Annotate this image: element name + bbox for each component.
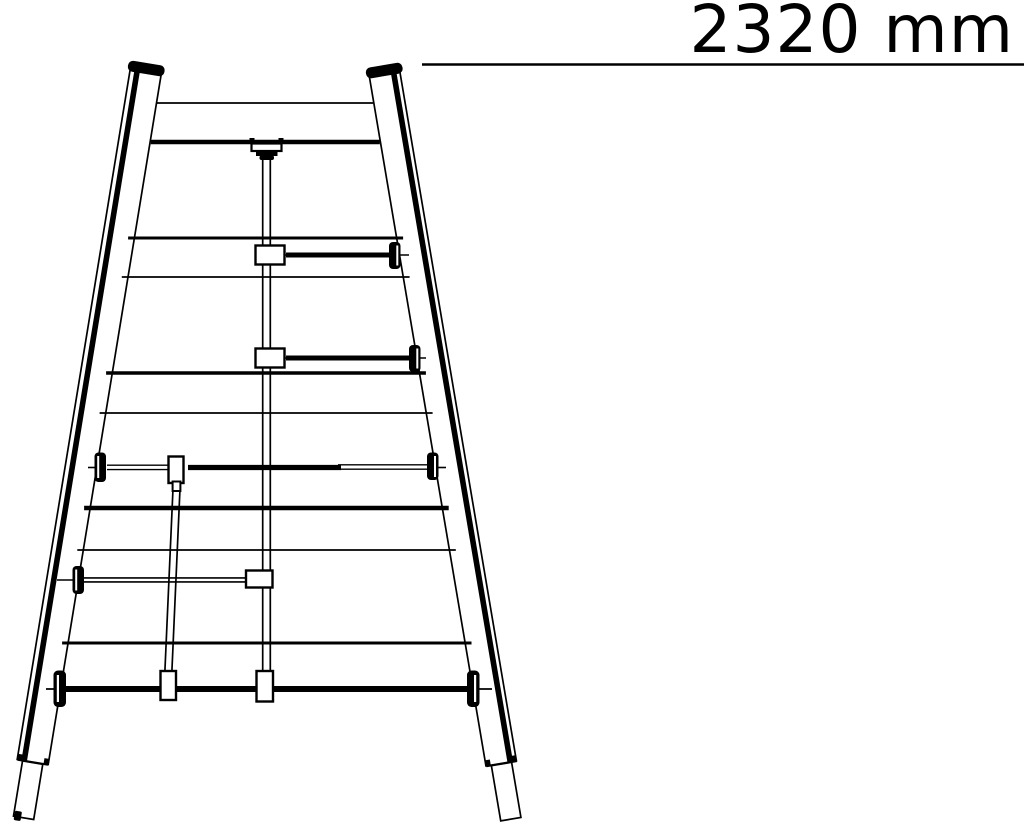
right-rail: [365, 62, 529, 822]
tie-rod-a: [256, 242, 410, 269]
right-rail-outer-edge: [399, 69, 516, 761]
right-foot: [491, 762, 521, 821]
left-rail-inner-edge: [48, 74, 161, 766]
tie-rod-d-flange: [73, 566, 85, 594]
tie-rod-e: [46, 671, 492, 708]
drawing-canvas: 2320 mm: [0, 0, 1024, 836]
center-rod: [263, 153, 271, 689]
right-rail-inner-edge: [369, 76, 486, 767]
tie-rod-e-flange-left: [54, 671, 67, 708]
left-rail-top-cap: [127, 60, 165, 77]
turnbuckle-body: [169, 457, 184, 484]
tie-rod-a-flange: [389, 242, 401, 269]
tie-rod-c-flange-right-highlight: [434, 456, 436, 477]
tie-rod-c-flange-left-highlight: [97, 456, 99, 478]
tie-rod-d-block: [246, 571, 273, 588]
tie-rod-e-flange-right: [467, 671, 480, 708]
tie-rod-c-flange-right: [427, 453, 439, 481]
t-bracket-plate: [252, 144, 282, 152]
dimension-label: 2320 mm: [689, 0, 1014, 68]
tie-rod-c: [88, 453, 446, 492]
tie-rod-b-flange-highlight: [416, 349, 418, 369]
tie-rod-a-block: [256, 246, 285, 265]
t-bracket-body: [256, 151, 278, 157]
left-rail-band: [21, 68, 140, 762]
tie-rod-c-flange-left: [95, 453, 107, 483]
left-rail: [5, 60, 166, 824]
tie-rod-e-flange-left-highlight: [57, 675, 59, 702]
t-bracket-collar: [260, 156, 275, 161]
tie-rod-b: [256, 345, 427, 372]
right-rail-top-cap: [365, 62, 403, 79]
left-foot: [13, 761, 42, 820]
tie-rod-d: [57, 566, 273, 594]
tie-rod-e-center-block: [257, 671, 274, 702]
tie-rod-b-flange: [409, 345, 421, 372]
tie-rod-a-flange-highlight: [396, 246, 398, 266]
turnbuckle-neck: [173, 482, 181, 492]
dimension: 2320 mm: [422, 0, 1024, 68]
right-rail-band: [391, 70, 514, 763]
tie-rod-b-block: [256, 349, 285, 368]
tie-rod-e-diagonal-block: [161, 671, 177, 700]
ladder-technical-drawing: 2320 mm: [0, 0, 1024, 836]
tie-rod-d-flange-highlight: [75, 570, 77, 591]
tie-rod-e-flange-right-highlight: [474, 675, 476, 702]
